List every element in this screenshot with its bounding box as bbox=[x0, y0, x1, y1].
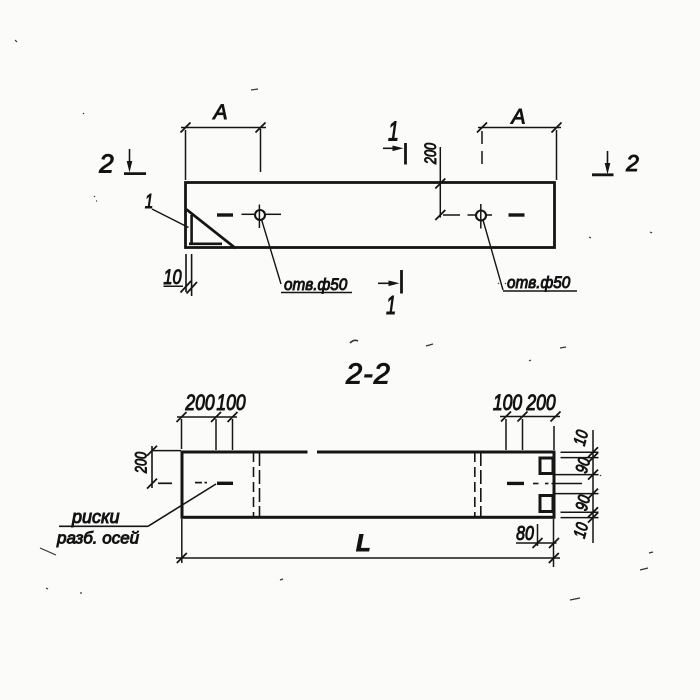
svg-text:10: 10 bbox=[163, 265, 182, 288]
svg-text:отв.ф50: отв.ф50 bbox=[284, 275, 347, 294]
svg-text:200: 200 bbox=[525, 391, 555, 415]
svg-text:1: 1 bbox=[388, 116, 399, 147]
svg-text:100: 100 bbox=[216, 391, 245, 415]
svg-text:разб. осей: разб. осей bbox=[56, 529, 140, 548]
svg-text:200: 200 bbox=[421, 142, 440, 165]
svg-text:L: L bbox=[356, 530, 371, 557]
svg-text:80: 80 bbox=[516, 522, 534, 544]
svg-text:10: 10 bbox=[571, 428, 593, 448]
svg-text:A: A bbox=[211, 101, 227, 124]
svg-text:1: 1 bbox=[145, 190, 153, 213]
svg-text:200: 200 bbox=[184, 391, 214, 415]
svg-text:2: 2 bbox=[98, 149, 114, 179]
svg-text:10: 10 bbox=[571, 520, 593, 540]
svg-text:отв.ф50: отв.ф50 bbox=[507, 273, 570, 292]
svg-text:2-2: 2-2 bbox=[345, 359, 391, 391]
svg-text:1: 1 bbox=[386, 291, 396, 320]
svg-text:100: 100 bbox=[493, 391, 522, 415]
svg-text:риски: риски bbox=[71, 507, 120, 527]
svg-text:A: A bbox=[509, 106, 525, 129]
svg-text:2: 2 bbox=[625, 150, 639, 176]
svg-text:200: 200 bbox=[132, 451, 151, 474]
